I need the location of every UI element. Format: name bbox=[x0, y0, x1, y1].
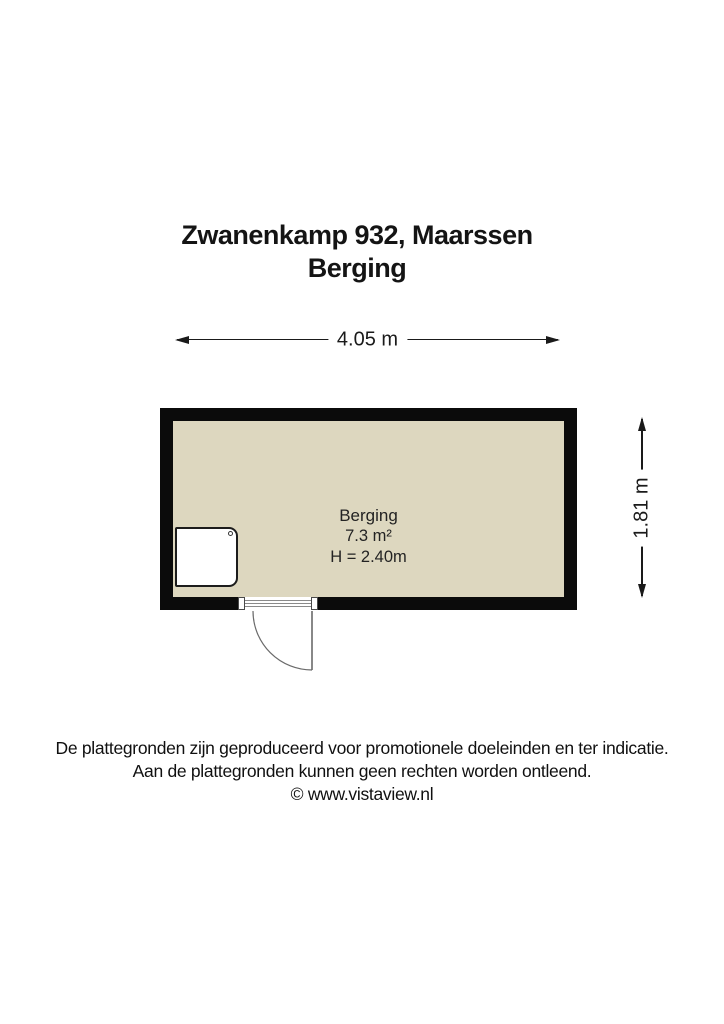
height-dimension: 1.81 m bbox=[634, 417, 650, 598]
page-title: Zwanenkamp 932, Maarssen Berging bbox=[0, 219, 714, 285]
door-swing-arc bbox=[253, 611, 312, 670]
height-dimension-label: 1.81 m bbox=[630, 469, 655, 546]
disclaimer-line-2: Aan de plattegronden kunnen geen rechten… bbox=[0, 760, 724, 783]
title-room: Berging bbox=[0, 252, 714, 285]
disclaimer-line-1: De plattegronden zijn geproduceerd voor … bbox=[0, 737, 724, 760]
title-address: Zwanenkamp 932, Maarssen bbox=[0, 219, 714, 252]
width-dimension: 4.05 m bbox=[175, 331, 560, 348]
arrow-down-icon bbox=[638, 584, 646, 598]
arrow-up-icon bbox=[638, 417, 646, 431]
door-swing bbox=[238, 610, 318, 674]
arrow-left-icon bbox=[175, 336, 189, 344]
appliance-fixture bbox=[175, 527, 238, 587]
door-jamb-right bbox=[311, 597, 318, 610]
appliance-knob-icon bbox=[228, 531, 233, 536]
door-jamb-left bbox=[238, 597, 245, 610]
room-name: Berging bbox=[173, 505, 564, 526]
door-opening bbox=[238, 597, 318, 610]
disclaimer: De plattegronden zijn geproduceerd voor … bbox=[0, 737, 724, 806]
floorplan: Berging 7.3 m² H = 2.40m bbox=[160, 408, 577, 610]
copyright: © www.vistaview.nl bbox=[0, 783, 724, 806]
width-dimension-label: 4.05 m bbox=[328, 328, 407, 351]
arrow-right-icon bbox=[546, 336, 560, 344]
door-threshold bbox=[245, 598, 311, 609]
floorplan-page: Zwanenkamp 932, Maarssen Berging 4.05 m … bbox=[0, 0, 724, 1024]
